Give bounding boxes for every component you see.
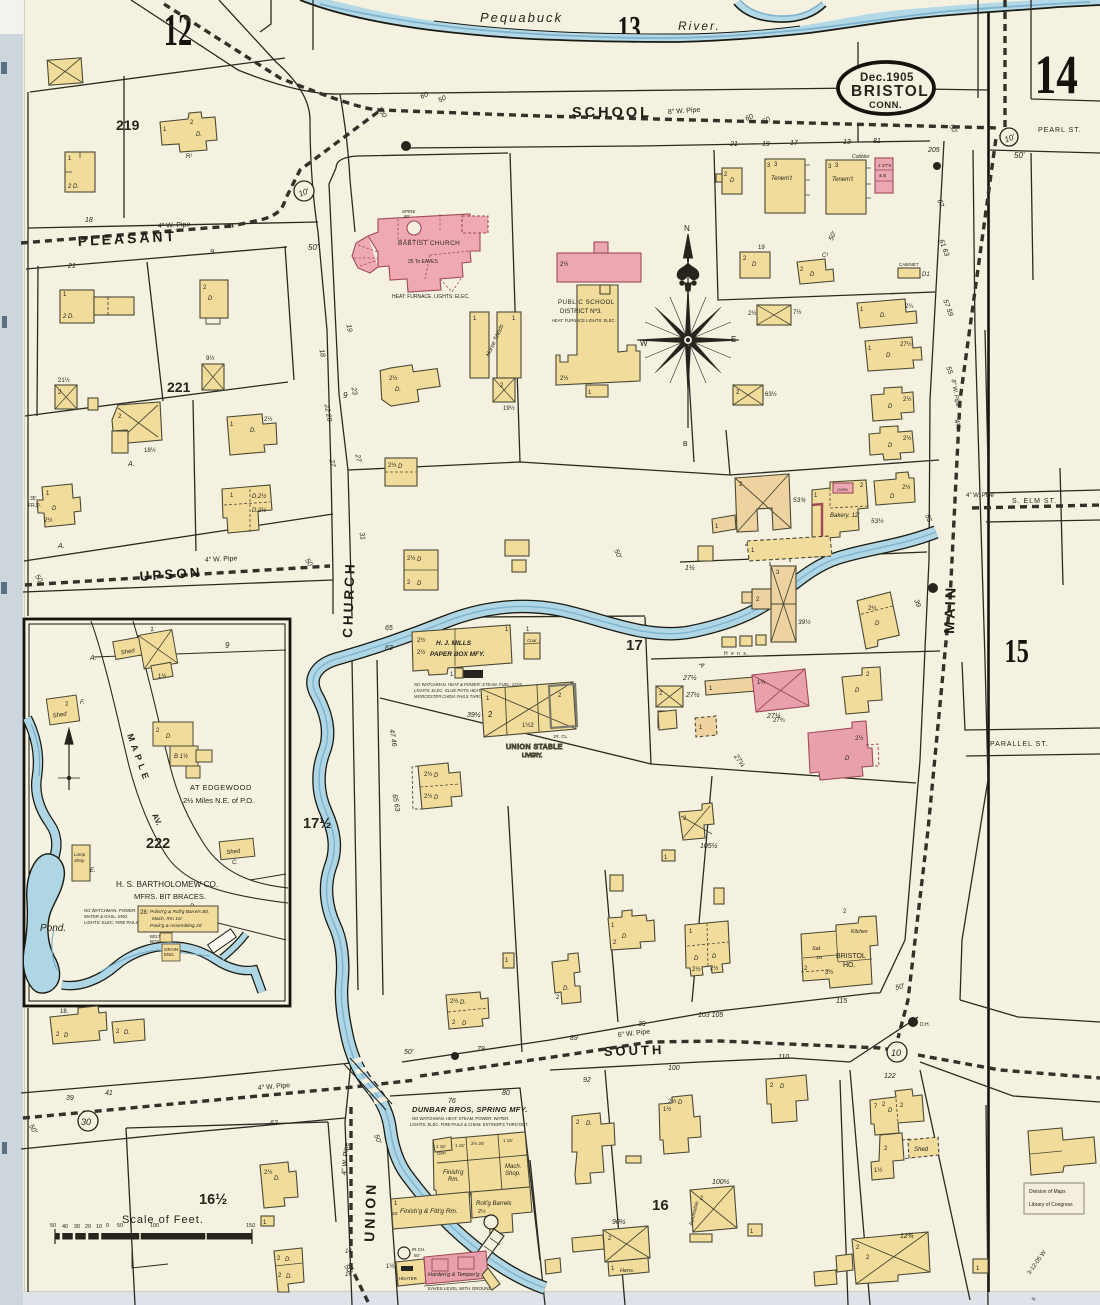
svg-text:D: D: [622, 934, 627, 940]
svg-text:222: 222: [146, 836, 170, 852]
svg-text:27¼: 27¼: [766, 713, 781, 720]
svg-text:D.2½: D.2½: [252, 493, 266, 500]
svg-text:19: 19: [762, 141, 770, 148]
svg-text:H. S. BARTHOLOMEW CO.: H. S. BARTHOLOMEW CO.: [116, 880, 218, 889]
svg-text:D.H.: D.H.: [920, 1022, 930, 1028]
svg-text:LIGHTS: ELEC. FIRE PAILS: LIGHTS: ELEC. FIRE PAILS: [84, 920, 138, 925]
svg-text:D: D: [890, 494, 895, 500]
svg-text:2½: 2½: [417, 649, 425, 656]
svg-text:1½2: 1½2: [522, 722, 534, 729]
svg-text:Lamp: Lamp: [74, 852, 86, 857]
svg-text:50': 50': [404, 1049, 414, 1056]
svg-text:MAIN: MAIN: [942, 585, 960, 635]
svg-text:D.: D.: [250, 428, 256, 434]
svg-text:D: D: [678, 1100, 683, 1106]
svg-text:D: D: [752, 262, 757, 268]
svg-text:15': 15': [392, 1211, 398, 1216]
svg-text:41: 41: [105, 1090, 113, 1097]
svg-text:76: 76: [448, 1098, 456, 1105]
svg-text:89: 89: [570, 1035, 578, 1042]
svg-text:2½: 2½: [407, 555, 415, 562]
svg-text:221: 221: [167, 379, 191, 395]
svg-text:BRISTOL: BRISTOL: [836, 953, 866, 960]
svg-text:21: 21: [67, 263, 76, 270]
svg-text:D: D: [730, 178, 735, 184]
svg-text:17½: 17½: [303, 816, 331, 832]
svg-text:80: 80: [502, 1090, 510, 1097]
svg-text:1 15': 1 15': [503, 1138, 513, 1143]
svg-text:D: D: [888, 443, 893, 449]
svg-text:D: D: [166, 734, 171, 740]
svg-text:2½: 2½: [424, 793, 432, 800]
svg-text:21½: 21½: [58, 377, 70, 384]
svg-text:15: 15: [1004, 633, 1028, 670]
svg-text:C.: C.: [232, 860, 238, 866]
svg-text:D: D: [462, 1021, 467, 1027]
svg-text:80': 80': [404, 214, 410, 219]
svg-text:Shop: Shop: [74, 858, 85, 863]
svg-text:D: D: [52, 506, 57, 512]
svg-text:2½: 2½: [668, 1098, 676, 1105]
svg-text:92: 92: [583, 1077, 591, 1084]
svg-text:63: 63: [385, 645, 393, 652]
svg-text:CABINET: CABINET: [899, 262, 919, 267]
svg-text:53¾: 53¾: [793, 497, 806, 504]
svg-text:Pequabuck: Pequabuck: [480, 10, 563, 25]
svg-text:D.: D.: [563, 986, 569, 992]
svg-text:150: 150: [246, 1223, 255, 1229]
svg-text:103 105: 103 105: [698, 1012, 723, 1019]
svg-text:HEAT: FURNACE. LIGHTS: ELEC.: HEAT: FURNACE. LIGHTS: ELEC.: [392, 294, 469, 300]
svg-text:4″ W. Pipe: 4″ W. Pipe: [966, 493, 994, 499]
svg-text:30: 30: [74, 1224, 80, 1230]
svg-text:28:: 28:: [140, 910, 149, 916]
svg-text:D.: D.: [586, 1121, 592, 1127]
svg-text:Division of Maps: Division of Maps: [1029, 1189, 1066, 1195]
svg-text:D: D: [694, 956, 699, 962]
svg-text:18.: 18.: [60, 1009, 69, 1015]
svg-text:PUBLIC SCHOOL: PUBLIC SCHOOL: [558, 299, 615, 306]
svg-text:219: 219: [116, 117, 140, 133]
svg-text:2½ 20': 2½ 20': [471, 1140, 485, 1146]
svg-text:D: D: [886, 353, 891, 359]
svg-text:Cobbler: Cobbler: [852, 154, 870, 160]
svg-text:PEARL ST.: PEARL ST.: [1038, 127, 1082, 134]
svg-text:63½: 63½: [765, 391, 777, 398]
svg-text:LIVERY.: LIVERY.: [522, 753, 543, 759]
svg-text:Mach. Rm 1st: Mach. Rm 1st: [152, 916, 182, 922]
svg-text:D: D: [417, 557, 422, 563]
svg-text:90½: 90½: [612, 1218, 626, 1226]
svg-text:D: D: [888, 1108, 893, 1114]
svg-text:50: 50: [50, 1223, 56, 1229]
svg-text:Hens.: Hens.: [620, 1268, 634, 1274]
svg-text:39: 39: [638, 1021, 646, 1028]
svg-text:100½: 100½: [712, 1178, 730, 1186]
svg-text:79: 79: [477, 1046, 485, 1053]
svg-text:Shed: Shed: [914, 1147, 929, 1153]
svg-text:2½: 2½: [44, 517, 52, 524]
svg-text:River.: River.: [678, 19, 721, 33]
svg-text:Pack'g & Assembling 2d: Pack'g & Assembling 2d: [150, 923, 202, 929]
svg-text:D: D: [780, 1084, 785, 1090]
svg-text:B 1½: B 1½: [174, 753, 188, 760]
svg-text:DISTRICT Nº3.: DISTRICT Nº3.: [560, 308, 602, 315]
svg-text:16½: 16½: [199, 1192, 227, 1208]
svg-text:30: 30: [81, 1117, 91, 1127]
svg-text:2½: 2½: [868, 605, 876, 612]
svg-text:2½: 2½: [692, 966, 700, 973]
svg-text:7½: 7½: [793, 309, 801, 316]
svg-text:OVEN: OVEN: [837, 488, 848, 492]
svg-text:2½: 2½: [478, 1208, 486, 1215]
svg-text:Bakery. 12': Bakery. 12': [830, 513, 860, 519]
svg-text:Roll'g Barrels: Roll'g Barrels: [476, 1201, 512, 1207]
svg-text:2½: 2½: [388, 462, 396, 469]
svg-text:NO WATCHMAN. POWER:: NO WATCHMAN. POWER:: [84, 908, 136, 913]
svg-text:MFRS. BIT BRACES.: MFRS. BIT BRACES.: [134, 892, 206, 901]
svg-text:H. J. MILLS: H. J. MILLS: [436, 640, 472, 647]
svg-text:F.: F.: [80, 700, 85, 706]
svg-text:D.: D.: [286, 1274, 292, 1280]
svg-text:110: 110: [778, 1054, 789, 1061]
svg-text:18½: 18½: [144, 447, 156, 454]
svg-text:2½: 2½: [417, 637, 425, 644]
svg-text:D.: D.: [395, 387, 401, 393]
svg-text:2½: 2½: [264, 1169, 272, 1176]
svg-text:D: D: [875, 621, 880, 627]
svg-text:40: 40: [62, 1224, 68, 1230]
svg-text:2½: 2½: [450, 998, 458, 1005]
svg-text:115: 115: [836, 998, 847, 1005]
svg-text:Kitchen: Kitchen: [851, 929, 868, 935]
svg-text:D: D: [845, 756, 850, 762]
svg-text:14: 14: [1035, 44, 1078, 105]
svg-text:17: 17: [790, 140, 799, 147]
svg-text:9: 9: [210, 249, 214, 256]
svg-text:13: 13: [843, 139, 851, 146]
svg-text:1st: 1st: [816, 955, 823, 960]
svg-text:D: D: [208, 296, 213, 302]
svg-text:205: 205: [927, 147, 940, 154]
svg-text:2½: 2½: [389, 375, 397, 382]
svg-text:A.: A.: [57, 543, 65, 550]
svg-text:9½: 9½: [206, 355, 214, 362]
svg-text:CONN.: CONN.: [869, 100, 902, 111]
svg-text:27½: 27½: [682, 674, 697, 682]
svg-text:D: D: [64, 1033, 69, 1039]
svg-text:HEAT: FURNACE LIGHTS: ELEC.: HEAT: FURNACE LIGHTS: ELEC.: [552, 318, 616, 323]
svg-text:DUNBAR BROS, SPRING MFY.: DUNBAR BROS, SPRING MFY.: [412, 1105, 528, 1114]
svg-text:OFF.: OFF.: [437, 1151, 447, 1156]
svg-text:25 To EAVES: 25 To EAVES: [408, 259, 438, 265]
svg-text:10: 10: [891, 1048, 901, 1058]
svg-text:1R. CL.: 1R. CL.: [553, 734, 568, 739]
svg-text:9: 9: [225, 641, 230, 650]
svg-text:16: 16: [652, 1197, 669, 1214]
svg-text:CHURCH: CHURCH: [340, 561, 358, 638]
svg-text:Mach.: Mach.: [505, 1164, 521, 1170]
svg-text:D: D: [855, 688, 860, 694]
svg-text:Pond.: Pond.: [40, 923, 66, 934]
svg-text:2 ST'S: 2 ST'S: [878, 163, 891, 168]
svg-text:2½: 2½: [264, 416, 272, 423]
svg-text:D.: D.: [880, 313, 886, 319]
svg-text:27½: 27½: [685, 691, 700, 699]
svg-text:D: D: [398, 464, 403, 470]
svg-text:31: 31: [358, 532, 366, 541]
svg-text:BRISTOL: BRISTOL: [851, 83, 929, 100]
svg-text:18: 18: [85, 217, 93, 224]
svg-text:Scale of Feet.: Scale of Feet.: [122, 1214, 204, 1226]
svg-text:PAPER BOX MFY.: PAPER BOX MFY.: [430, 651, 485, 658]
svg-text:18: 18: [318, 349, 326, 358]
svg-text:39½: 39½: [467, 711, 481, 719]
svg-text:9: 9: [343, 391, 348, 400]
svg-text:2½: 2½: [902, 484, 910, 491]
svg-text:Harden'g & Temper'g: Harden'g & Temper'g: [428, 1272, 480, 1278]
svg-text:NO WATCHMAN. HEAT & POWER: STE: NO WATCHMAN. HEAT & POWER: STEAM. FUEL: …: [414, 682, 525, 687]
svg-text:S. ELM ST.: S. ELM ST.: [1012, 498, 1057, 505]
svg-text:EAVES LEVEL WITH GROUND.: EAVES LEVEL WITH GROUND.: [428, 1286, 493, 1291]
svg-text:19: 19: [758, 245, 765, 251]
svg-text:E.: E.: [90, 868, 96, 874]
svg-text:N: N: [684, 224, 690, 233]
svg-text:2½: 2½: [855, 735, 863, 742]
svg-text:& B: & B: [879, 173, 886, 178]
svg-text:Coal: Coal: [527, 638, 537, 643]
svg-text:Sal.: Sal.: [812, 946, 821, 952]
svg-text:17: 17: [626, 637, 643, 654]
svg-text:1½: 1½: [685, 564, 695, 572]
svg-text:SCHOOL: SCHOOL: [572, 105, 652, 121]
svg-text:D.: D.: [460, 1000, 466, 1006]
svg-text:10: 10: [96, 1224, 102, 1230]
svg-text:2½: 2½: [424, 771, 432, 778]
svg-text:14: 14: [345, 1249, 352, 1255]
svg-text:D.: D.: [274, 1176, 280, 1182]
svg-text:27½: 27½: [900, 341, 912, 348]
svg-text:1½: 1½: [158, 673, 166, 680]
svg-text:20: 20: [85, 1224, 91, 1230]
svg-text:39: 39: [66, 1095, 74, 1102]
svg-text:Rm.: Rm.: [448, 1177, 459, 1183]
svg-text:39½: 39½: [798, 618, 811, 626]
svg-text:Tenem't: Tenem't: [771, 176, 792, 182]
svg-text:D: D: [417, 581, 422, 587]
svg-text:2½ Miles N.E. of P.O.: 2½ Miles N.E. of P.O.: [183, 796, 254, 805]
svg-text:65: 65: [385, 625, 393, 632]
svg-text:FR.D.: FR.D.: [28, 503, 41, 509]
svg-text:C¹: C¹: [822, 253, 828, 259]
svg-text:19: 19: [345, 324, 353, 333]
svg-text:D: D: [434, 795, 439, 801]
svg-text:0: 0: [106, 1223, 109, 1229]
svg-text:2½: 2½: [560, 261, 568, 268]
svg-text:50: 50: [117, 1223, 123, 1229]
svg-text:1 15': 1 15': [436, 1144, 446, 1149]
svg-text:1½: 1½: [386, 1263, 394, 1270]
svg-text:IR.CH.: IR.CH.: [412, 1247, 426, 1252]
svg-text:HO.: HO.: [843, 962, 856, 969]
svg-text:1½: 1½: [874, 1167, 882, 1174]
svg-text:1½: 1½: [757, 679, 765, 686]
svg-text:2½: 2½: [710, 965, 718, 972]
svg-text:Finish'g: Finish'g: [443, 1170, 464, 1176]
svg-text:R¹: R¹: [186, 154, 192, 160]
svg-text:21: 21: [729, 141, 738, 148]
svg-text:H e n s.: H e n s.: [724, 651, 749, 657]
svg-text:D: D: [712, 954, 717, 960]
svg-text:AT EDGEWOOD: AT EDGEWOOD: [190, 783, 252, 792]
svg-text:ENG.: ENG.: [164, 952, 175, 957]
svg-text:2: 2: [488, 710, 493, 719]
svg-text:50': 50': [414, 1253, 420, 1258]
svg-text:UNION STABLE: UNION STABLE: [506, 744, 563, 751]
svg-text:D.2½: D.2½: [252, 507, 266, 514]
svg-text:BABTIST CHURCH: BABTIST CHURCH: [398, 240, 460, 247]
svg-text:2½: 2½: [903, 396, 911, 403]
svg-text:Shop.: Shop.: [505, 1171, 521, 1177]
svg-text:A.: A.: [89, 655, 97, 662]
svg-text:16: 16: [345, 1272, 352, 1278]
svg-text:1½: 1½: [663, 1106, 671, 1113]
svg-text:2 D.: 2 D.: [62, 314, 74, 320]
svg-text:50': 50': [1014, 151, 1025, 160]
svg-text:SOUTH: SOUTH: [604, 1042, 665, 1059]
svg-text:62: 62: [270, 1120, 278, 1127]
svg-text:HEATER: HEATER: [399, 1276, 418, 1281]
svg-text:Polish'g & Roll'g Barrels Bit.: Polish'g & Roll'g Barrels Bit.: [150, 909, 209, 915]
svg-text:2 D.: 2 D.: [67, 184, 79, 190]
svg-text:WATER & GASL. ENG.: WATER & GASL. ENG.: [84, 914, 129, 919]
svg-text:2¼: 2¼: [905, 304, 914, 310]
svg-text:2½: 2½: [748, 310, 756, 317]
svg-text:1 15': 1 15': [455, 1143, 465, 1148]
svg-text:2½: 2½: [903, 435, 911, 442]
svg-text:BOX: BOX: [150, 939, 160, 944]
svg-text:2½: 2½: [560, 375, 568, 382]
svg-text:LIGHTS: ELEC. FIRE PAILS & CHE: LIGHTS: ELEC. FIRE PAILS & CHEM. EXTINGR…: [410, 1122, 528, 1127]
svg-text:105½: 105½: [700, 842, 718, 850]
svg-text:NO WATCHMAN. HEAT: STEAM. POWE: NO WATCHMAN. HEAT: STEAM. POWER: WATER.: [412, 1116, 509, 1121]
svg-text:122: 122: [884, 1073, 896, 1080]
svg-text:D: D: [810, 272, 815, 278]
svg-text:D.: D.: [196, 132, 202, 138]
svg-text:Finish'g & Fitt'g Rm.: Finish'g & Fitt'g Rm.: [400, 1208, 458, 1215]
svg-text:35': 35': [30, 496, 37, 502]
svg-text:D: D: [888, 404, 893, 410]
svg-text:Library of Congress: Library of Congress: [1029, 1202, 1073, 1208]
svg-text:A.: A.: [127, 461, 135, 468]
svg-text:D.: D.: [124, 1030, 130, 1036]
svg-text:100: 100: [668, 1065, 680, 1072]
svg-text:81: 81: [873, 138, 881, 145]
svg-text:12¾: 12¾: [900, 1233, 914, 1240]
svg-text:PARALLEL ST.: PARALLEL ST.: [990, 741, 1049, 748]
svg-text:19½: 19½: [503, 405, 515, 412]
svg-text:D1: D1: [922, 272, 930, 278]
svg-text:53½: 53½: [871, 517, 884, 525]
svg-text:50': 50': [308, 243, 319, 252]
svg-text:Tenem't: Tenem't: [832, 177, 853, 183]
svg-text:UNION: UNION: [361, 1181, 379, 1242]
svg-text:B: B: [683, 441, 688, 448]
svg-text:D: D: [434, 773, 439, 779]
svg-text:D.: D.: [285, 1257, 291, 1263]
svg-text:100: 100: [150, 1223, 159, 1229]
